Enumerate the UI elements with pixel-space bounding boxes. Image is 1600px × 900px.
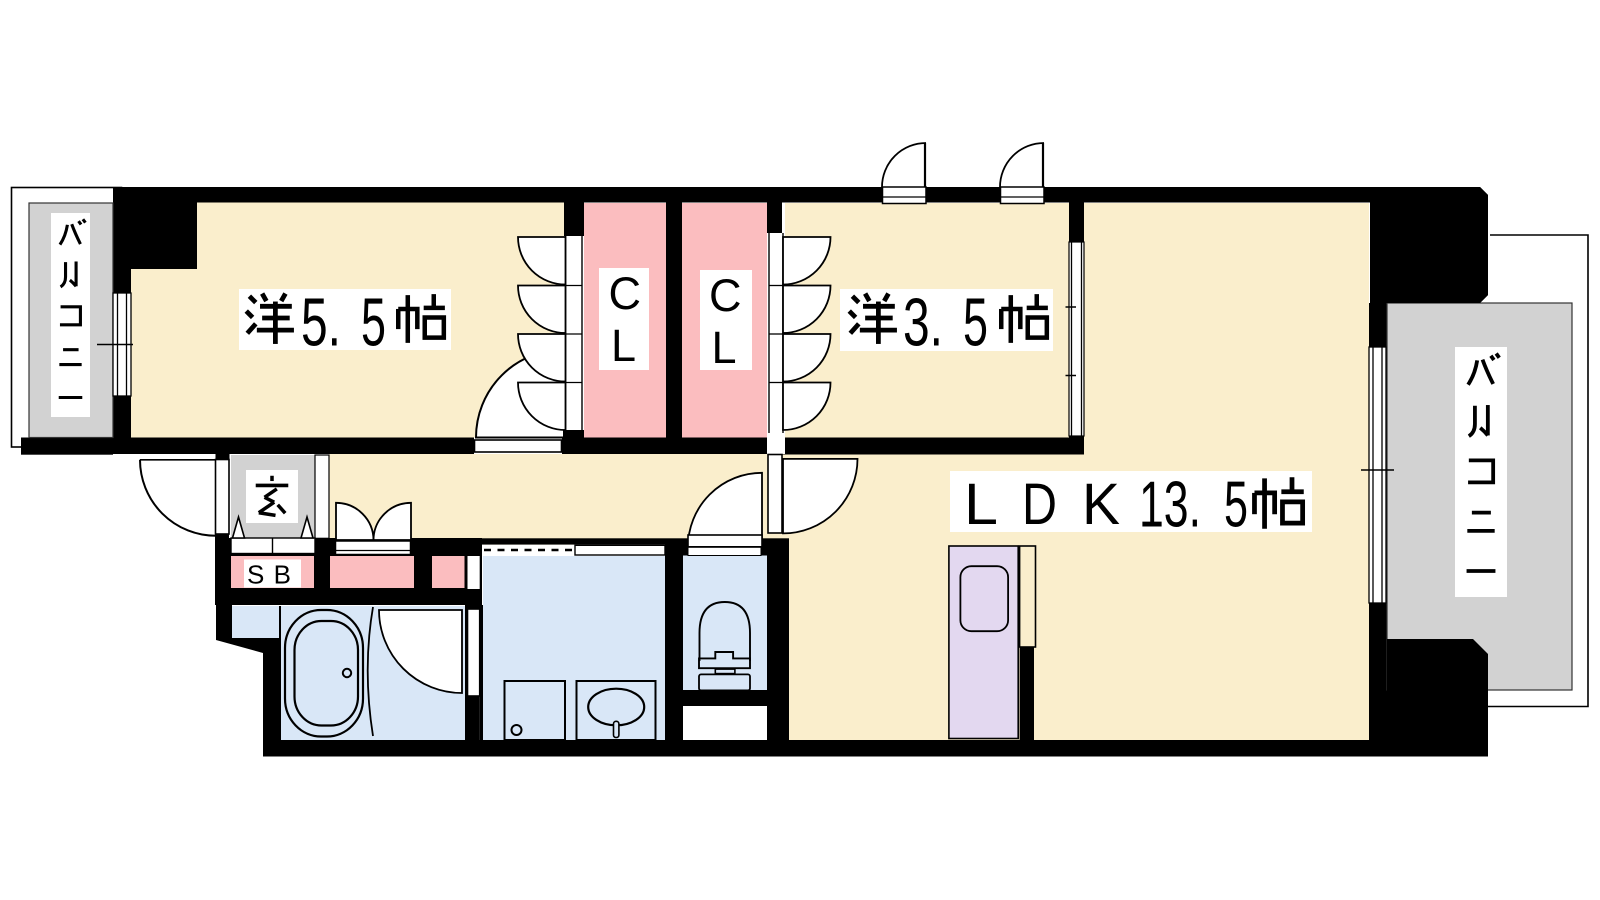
svg-text:L: L: [611, 320, 636, 371]
svg-text:3.: 3.: [903, 285, 943, 361]
svg-text:D: D: [1022, 472, 1057, 537]
svg-text:SB: SB: [247, 560, 299, 590]
svg-text:5: 5: [1224, 468, 1248, 541]
svg-text:5: 5: [963, 285, 988, 361]
svg-text:13.: 13.: [1139, 468, 1201, 541]
svg-text:C: C: [709, 270, 742, 321]
svg-text:5.: 5.: [301, 285, 341, 361]
svg-text:L: L: [964, 472, 998, 537]
svg-text:L: L: [712, 322, 737, 373]
svg-text:K: K: [1082, 472, 1120, 537]
svg-text:5: 5: [361, 285, 386, 361]
svg-text:C: C: [609, 268, 642, 319]
